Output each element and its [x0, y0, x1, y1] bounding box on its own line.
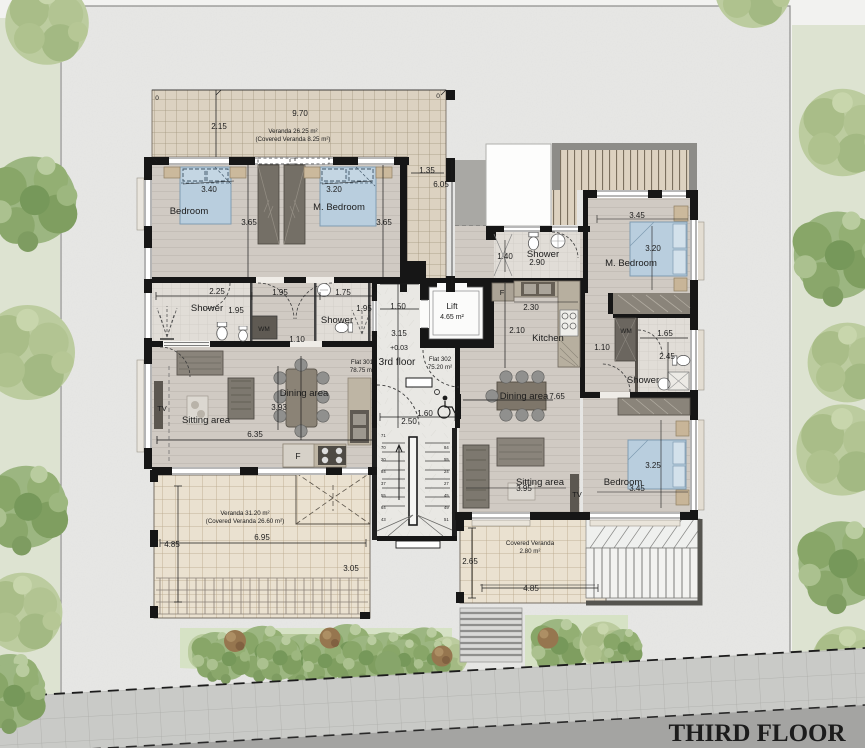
svg-text:24: 24	[444, 469, 449, 474]
svg-text:Covered Veranda: Covered Veranda	[506, 540, 555, 547]
svg-text:6.05: 6.05	[433, 180, 449, 189]
svg-text:TV: TV	[157, 404, 167, 413]
svg-text:1.75: 1.75	[335, 288, 351, 297]
svg-text:3.05: 3.05	[343, 564, 359, 573]
svg-text:2.10: 2.10	[509, 326, 525, 335]
svg-text:(Covered Veranda 26.60 m²): (Covered Veranda 26.60 m²)	[206, 518, 284, 525]
svg-text:1.95: 1.95	[228, 306, 244, 315]
svg-text:F: F	[500, 288, 505, 297]
svg-text:3.65: 3.65	[241, 218, 257, 227]
svg-text:Bedroom: Bedroom	[604, 477, 643, 488]
svg-text:1.10: 1.10	[594, 343, 610, 352]
svg-text:Shower: Shower	[321, 315, 353, 326]
svg-text:+0.03: +0.03	[390, 345, 408, 352]
svg-text:1.10: 1.10	[289, 335, 305, 344]
svg-text:6.95: 6.95	[254, 533, 270, 542]
svg-text:71: 71	[381, 433, 386, 438]
svg-text:WM: WM	[620, 328, 632, 335]
svg-text:51: 51	[444, 517, 449, 522]
svg-text:1.35: 1.35	[419, 166, 435, 175]
svg-text:M. Bedroom: M. Bedroom	[313, 202, 365, 213]
svg-text:3.65: 3.65	[376, 218, 392, 227]
svg-text:0: 0	[155, 95, 159, 102]
svg-text:Sitting area: Sitting area	[516, 477, 565, 488]
svg-text:Veranda 26.25 m²: Veranda 26.25 m²	[268, 128, 317, 135]
svg-text:4.85: 4.85	[164, 540, 180, 549]
svg-text:78.75 m²: 78.75 m²	[350, 367, 374, 374]
svg-text:84: 84	[381, 469, 386, 474]
svg-text:2.50: 2.50	[401, 417, 417, 426]
svg-text:3.40: 3.40	[201, 185, 217, 194]
svg-text:Shower: Shower	[627, 375, 659, 386]
svg-text:84: 84	[444, 445, 449, 450]
svg-text:70: 70	[381, 445, 386, 450]
svg-text:Sitting area: Sitting area	[182, 415, 231, 426]
svg-text:37: 37	[381, 481, 386, 486]
svg-text:1.95: 1.95	[356, 304, 372, 313]
svg-text:2.80 m²: 2.80 m²	[520, 548, 541, 555]
svg-text:3rd floor: 3rd floor	[379, 357, 416, 368]
svg-text:9.70: 9.70	[292, 109, 308, 118]
svg-text:3.20: 3.20	[326, 185, 342, 194]
svg-text:2.45: 2.45	[659, 352, 675, 361]
svg-text:2.30: 2.30	[523, 303, 539, 312]
svg-text:Flat 302: Flat 302	[429, 356, 452, 363]
svg-text:49: 49	[444, 505, 449, 510]
svg-text:3.93: 3.93	[271, 403, 287, 412]
svg-text:1.60: 1.60	[417, 409, 433, 418]
svg-text:75.20 m²: 75.20 m²	[428, 364, 452, 371]
svg-text:55: 55	[381, 493, 386, 498]
svg-text:Dining area: Dining area	[280, 388, 329, 399]
svg-text:43: 43	[381, 517, 386, 522]
svg-text:1.50: 1.50	[390, 302, 406, 311]
svg-text:0: 0	[436, 93, 440, 100]
svg-text:64: 64	[381, 505, 386, 510]
svg-text:55: 55	[444, 457, 449, 462]
svg-text:45: 45	[444, 493, 449, 498]
svg-text:Veranda 31.20 m²: Veranda 31.20 m²	[220, 510, 269, 517]
svg-text:2.25: 2.25	[209, 287, 225, 296]
svg-text:4.65 m²: 4.65 m²	[440, 314, 464, 321]
svg-text:3.45: 3.45	[629, 211, 645, 220]
svg-text:27: 27	[444, 481, 449, 486]
svg-text:7.65: 7.65	[549, 392, 565, 401]
svg-text:2.65: 2.65	[462, 557, 478, 566]
svg-text:Bedroom: Bedroom	[170, 206, 209, 217]
svg-text:3.20: 3.20	[645, 244, 661, 253]
svg-text:TV: TV	[572, 490, 582, 499]
svg-text:Flat 301: Flat 301	[351, 359, 374, 366]
svg-text:Dining area: Dining area	[500, 391, 549, 402]
svg-text:M. Bedroom: M. Bedroom	[605, 258, 657, 269]
svg-text:6.35: 6.35	[247, 430, 263, 439]
svg-text:1.40: 1.40	[497, 252, 513, 261]
svg-text:1.95: 1.95	[272, 288, 288, 297]
svg-text:WM: WM	[258, 326, 270, 333]
svg-text:(Covered Veranda 8.25 m²): (Covered Veranda 8.25 m²)	[256, 136, 331, 143]
svg-text:2.15: 2.15	[211, 122, 227, 131]
svg-text:F: F	[295, 451, 300, 461]
svg-text:Kitchen: Kitchen	[532, 333, 564, 344]
svg-text:Shower: Shower	[191, 303, 223, 314]
svg-text:3.15: 3.15	[391, 329, 407, 338]
svg-text:Lift: Lift	[446, 301, 458, 311]
svg-text:THIRD FLOOR: THIRD FLOOR	[668, 720, 846, 747]
svg-text:20: 20	[381, 457, 386, 462]
svg-text:Shower: Shower	[527, 249, 559, 260]
svg-text:3.25: 3.25	[645, 461, 661, 470]
svg-text:4.85: 4.85	[523, 584, 539, 593]
svg-text:1.65: 1.65	[657, 329, 673, 338]
